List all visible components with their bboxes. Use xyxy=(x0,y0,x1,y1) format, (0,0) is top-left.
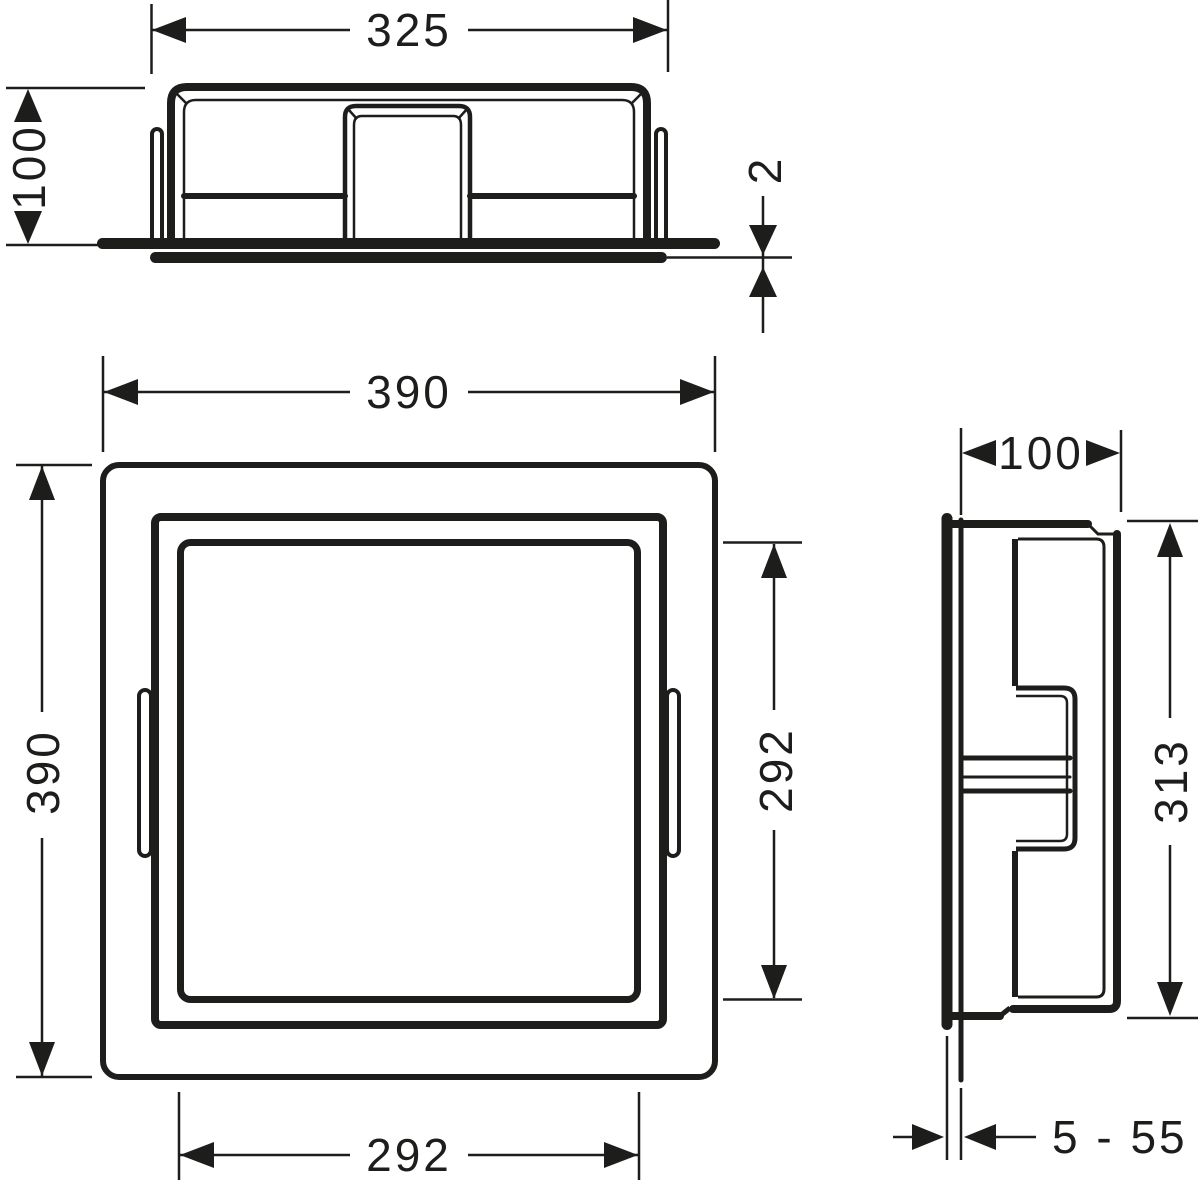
arrow-up-icon xyxy=(14,89,42,122)
dim-top-width: 325 xyxy=(152,0,669,74)
dim-label-depth: 100 xyxy=(998,427,1084,479)
arrow-left-icon xyxy=(964,1124,996,1150)
dim-label-cutout-width: 292 xyxy=(366,1129,452,1181)
arrow-right-icon xyxy=(633,17,667,43)
technical-drawing-page: 325 100 2 390 xyxy=(0,0,1200,1189)
arrow-right-icon xyxy=(1086,440,1120,466)
arrow-right-icon xyxy=(912,1124,944,1150)
dim-depth: 100 xyxy=(962,427,1121,512)
arrow-left-icon xyxy=(962,440,996,466)
arrow-up-icon xyxy=(761,544,787,578)
dim-cutout-height: 292 xyxy=(723,543,802,1000)
dim-top-height: 100 xyxy=(3,88,148,245)
arrow-up-icon xyxy=(749,267,777,297)
basket-outline-plan xyxy=(171,87,647,240)
clip-right-front xyxy=(667,690,679,856)
dim-tile-range: 5 - 55 xyxy=(893,1111,1188,1163)
front-view: 390 390 292 292 xyxy=(16,356,802,1181)
center-tab-plan xyxy=(345,106,470,240)
basket-inner-line-plan xyxy=(184,100,634,240)
clip-left-plan xyxy=(152,129,162,245)
arrow-up-icon xyxy=(29,466,55,500)
dim-label-top-height: 100 xyxy=(3,124,55,210)
frame-outer xyxy=(103,465,715,1077)
dim-label-body-height: 313 xyxy=(1145,738,1197,824)
side-view: 100 313 5 - 55 xyxy=(893,427,1198,1163)
flange-bar-front xyxy=(97,238,720,249)
arrow-left-icon xyxy=(152,17,186,43)
arrow-left-icon xyxy=(180,1142,214,1168)
dim-label-lip: 2 xyxy=(739,156,791,185)
dim-label-front-width: 390 xyxy=(366,366,452,418)
center-tab-inner-plan xyxy=(354,116,461,240)
arrow-down-icon xyxy=(749,225,777,255)
dim-lip-thickness: 2 xyxy=(739,156,791,333)
arrow-left-icon xyxy=(104,379,138,405)
basket-bottom-step xyxy=(1000,1008,1010,1016)
frame-cutout xyxy=(155,517,663,1025)
basket-back-wall xyxy=(1013,534,1117,1009)
dim-label-front-height: 390 xyxy=(17,729,69,815)
tab-corner-ticks xyxy=(348,109,467,119)
arrow-down-icon xyxy=(29,1042,55,1076)
arrow-right-icon xyxy=(604,1142,638,1168)
dim-label-cutout-height: 292 xyxy=(750,727,802,813)
tab-profile-inner xyxy=(1016,696,1067,841)
niche-opening xyxy=(181,543,638,1000)
dim-label-tile-range: 5 - 55 xyxy=(1052,1111,1188,1163)
dim-cutout-width: 292 xyxy=(179,1092,639,1181)
interior-contour xyxy=(1018,539,1104,997)
flange-side xyxy=(942,513,953,1030)
arrow-right-icon xyxy=(680,379,714,405)
arrow-down-icon xyxy=(14,211,42,244)
dim-front-width: 390 xyxy=(103,356,715,452)
dim-front-height: 390 xyxy=(16,465,92,1077)
dim-label-top-width: 325 xyxy=(366,4,452,56)
clip-left-front xyxy=(139,690,151,856)
drawing-canvas: 325 100 2 390 xyxy=(0,0,1200,1189)
arrow-down-icon xyxy=(761,965,787,999)
flange-bar-rear xyxy=(150,252,667,263)
arrow-down-icon xyxy=(1157,982,1183,1016)
top-view: 325 100 2 xyxy=(3,0,792,333)
clip-right-plan xyxy=(656,129,666,245)
dim-body-height: 313 xyxy=(1127,521,1198,1018)
arrow-up-icon xyxy=(1157,523,1183,557)
